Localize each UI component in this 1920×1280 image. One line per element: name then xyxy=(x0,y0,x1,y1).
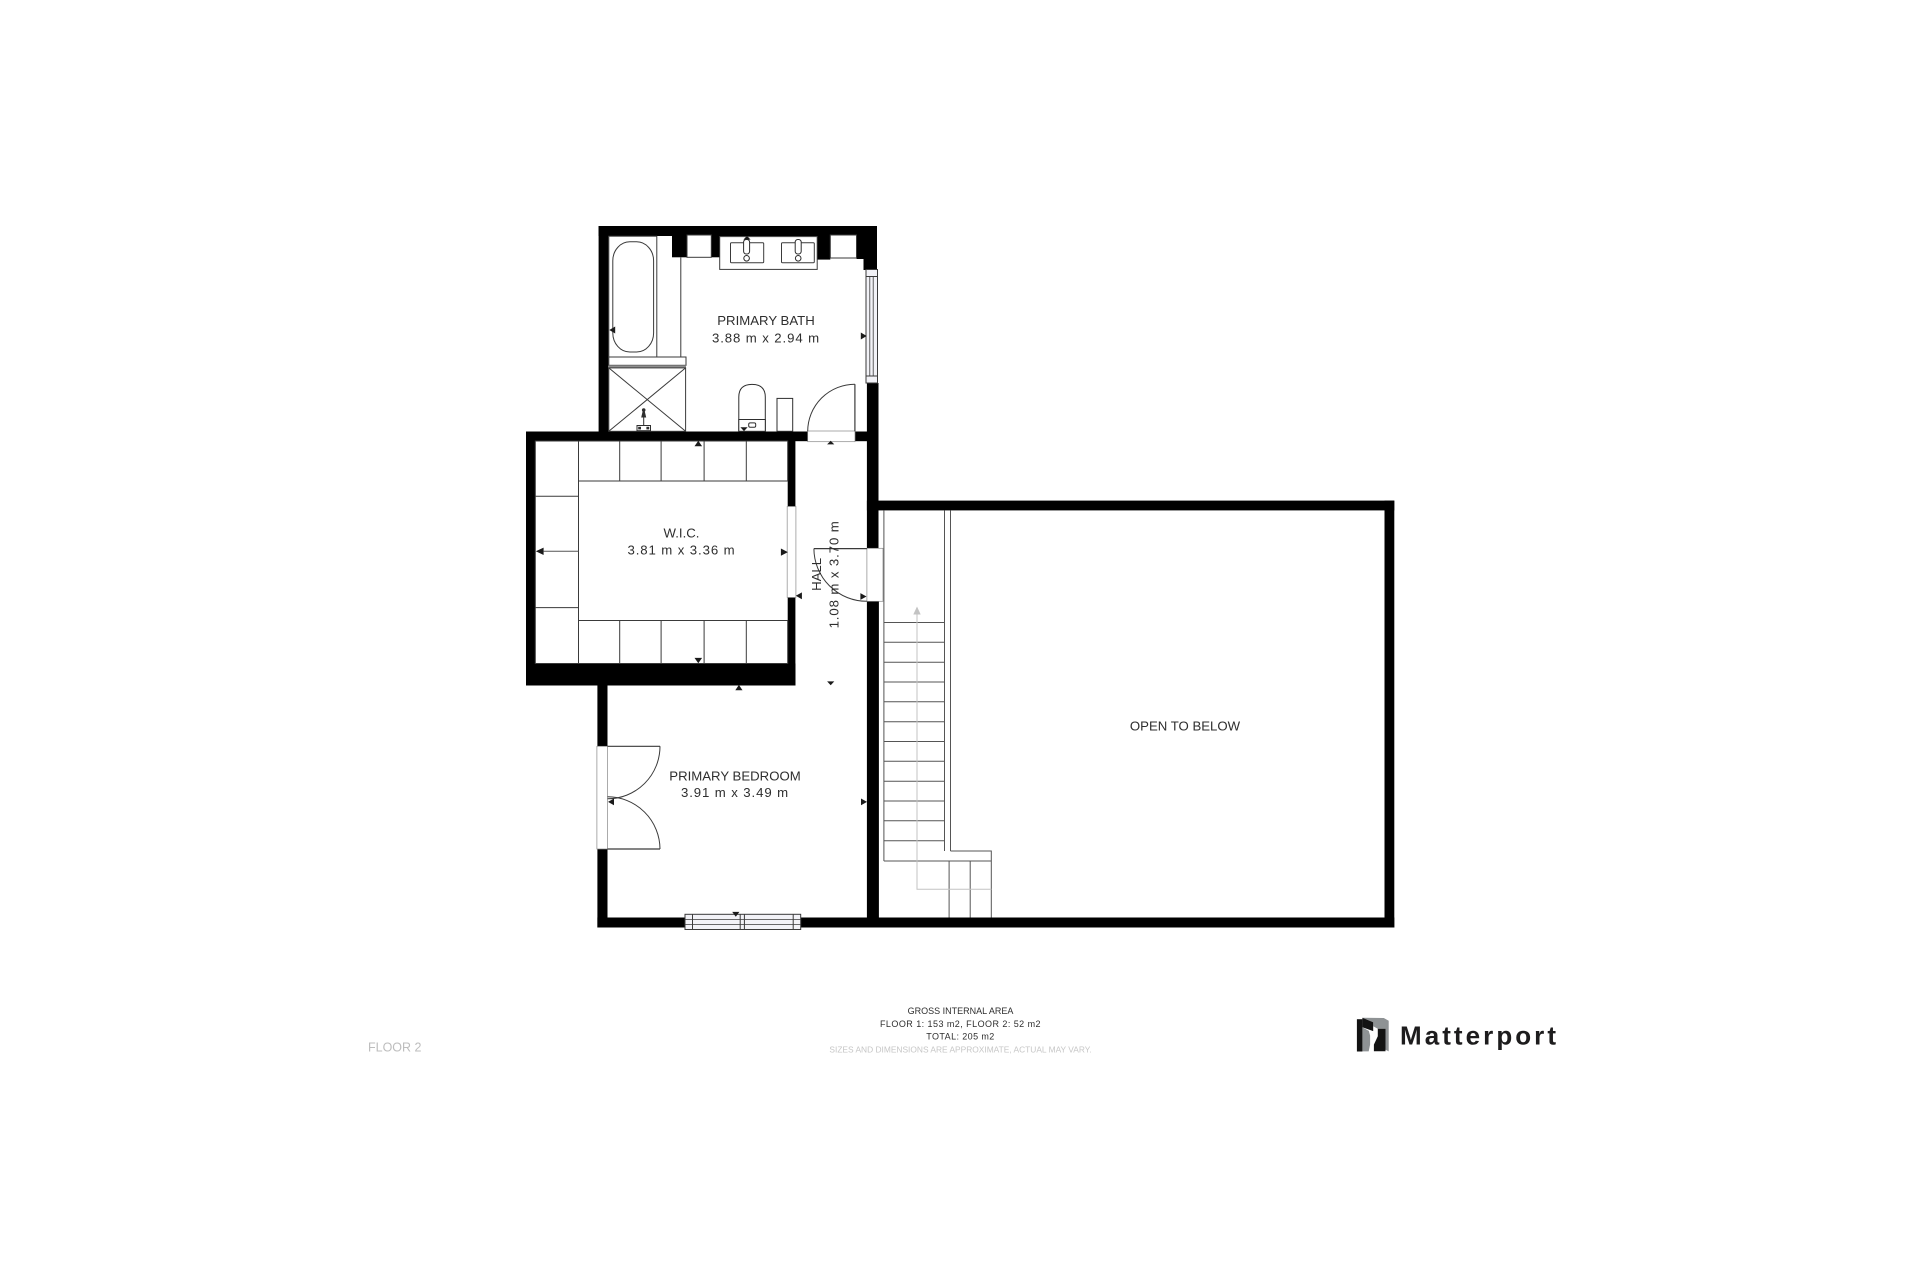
svg-text:HALL: HALL xyxy=(809,558,824,591)
svg-text:W.I.C.: W.I.C. xyxy=(664,526,700,541)
svg-text:PRIMARY BATH: PRIMARY BATH xyxy=(717,313,814,328)
svg-text:3.88 m x 2.94 m: 3.88 m x 2.94 m xyxy=(712,331,820,346)
svg-text:3.81 m x 3.36 m: 3.81 m x 3.36 m xyxy=(627,542,735,557)
svg-text:Matterport: Matterport xyxy=(1400,1020,1559,1050)
svg-text:1.08 m x 3.70 m: 1.08 m x 3.70 m xyxy=(827,520,842,628)
svg-text:PRIMARY BEDROOM: PRIMARY BEDROOM xyxy=(669,768,800,783)
svg-text:FLOOR 1: 153 m2, FLOOR 2: 52 m: FLOOR 1: 153 m2, FLOOR 2: 52 m2 xyxy=(880,1019,1041,1029)
svg-text:FLOOR 2: FLOOR 2 xyxy=(368,1041,422,1055)
svg-text:3.91 m x 3.49 m: 3.91 m x 3.49 m xyxy=(681,785,789,800)
svg-text:SIZES AND DIMENSIONS ARE APPRO: SIZES AND DIMENSIONS ARE APPROXIMATE, AC… xyxy=(829,1045,1091,1055)
svg-text:OPEN TO BELOW: OPEN TO BELOW xyxy=(1130,719,1241,734)
svg-text:TOTAL: 205 m2: TOTAL: 205 m2 xyxy=(926,1032,994,1042)
svg-text:GROSS INTERNAL AREA: GROSS INTERNAL AREA xyxy=(908,1006,1014,1016)
